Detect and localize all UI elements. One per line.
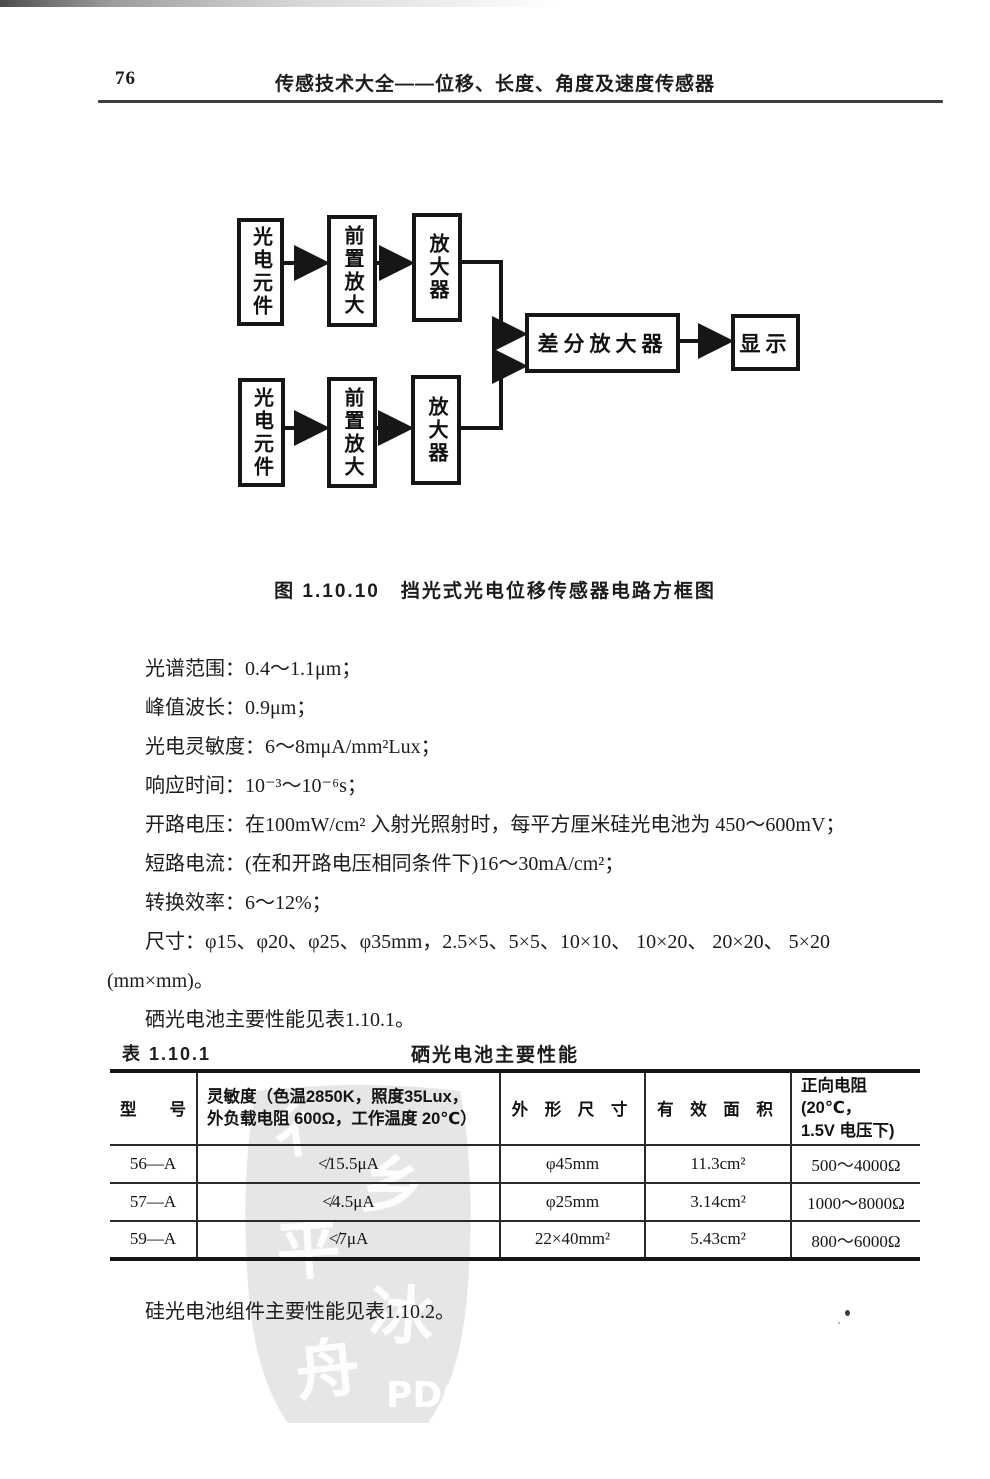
col-header-dimensions: 外 形 尺 寸 xyxy=(500,1071,645,1145)
col-header-forward-resistance: 正向电阻(20℃， 1.5V 电压下) xyxy=(791,1071,920,1145)
spec-line: 响应时间：10⁻³～10⁻⁶s； xyxy=(107,767,947,806)
spec-line: 峰值波长：0.9μm； xyxy=(107,689,947,728)
col-header-effective-area: 有 效 面 积 xyxy=(645,1071,791,1145)
cell-model: 57—A xyxy=(110,1183,197,1221)
watermark-label: PDG xyxy=(386,1375,472,1416)
cell-area: 3.14cm² xyxy=(645,1183,791,1221)
spec-line: 转换效率：6～12%； xyxy=(107,884,947,923)
cell-model: 59—A xyxy=(110,1221,197,1259)
spec-line: 开路电压：在100mW/cm² 入射光照射时，每平方厘米硅光电池为 450～60… xyxy=(107,806,947,845)
cell-area: 5.43cm² xyxy=(645,1221,791,1259)
spec-line-wrap: (mm×mm)。 xyxy=(107,962,947,1001)
cell-area: 11.3cm² xyxy=(645,1145,791,1183)
body-text-next-table-note: 硅光电池组件主要性能见表1.10.2。 xyxy=(145,1295,455,1324)
spec-line: 硒光电池主要性能见表1.10.1。 xyxy=(107,1001,947,1040)
table-row: 56—A ≮15.5μA φ45mm 11.3cm² 500～4000Ω xyxy=(110,1145,920,1183)
cell-sensitivity: ≮4.5μA xyxy=(197,1183,500,1221)
selenium-photocell-table: 型 号 灵敏度（色温2850K，照度35Lux， 外负载电阻 600Ω，工作温度… xyxy=(110,1069,920,1261)
cell-resistance: 500～4000Ω xyxy=(791,1145,920,1183)
spec-line: 光电灵敏度：6～8mμA/mm²Lux； xyxy=(107,728,947,767)
spec-line: 光谱范围：0.4～1.1μm； xyxy=(107,650,947,689)
figure-caption: 图 1.10.10 挡光式光电位移传感器电路方框图 xyxy=(0,576,990,603)
spec-line: 尺寸：φ15、φ20、φ25、φ35mm，2.5×5、5×5、10×10、 10… xyxy=(107,923,947,962)
cell-sensitivity: ≮15.5μA xyxy=(197,1145,500,1183)
diagram-connector-arrows xyxy=(0,0,990,560)
cell-resistance: 800～6000Ω xyxy=(791,1221,920,1259)
table-title: 硒光电池主要性能 xyxy=(0,1040,990,1067)
book-page: 彳 乡 平 冰 舟 PDG 76 传感技术大全——位移、长度、角度及速度传感器 … xyxy=(0,0,990,1479)
cell-model: 56—A xyxy=(110,1145,197,1183)
table-row: 59—A ≮7μA 22×40mm² 5.43cm² 800～6000Ω xyxy=(110,1221,920,1259)
cell-dimensions: φ25mm xyxy=(500,1183,645,1221)
cell-dimensions: 22×40mm² xyxy=(500,1221,645,1259)
svg-text:舟: 舟 xyxy=(292,1330,363,1411)
ink-speck xyxy=(838,1322,840,1324)
col-header-sensitivity: 灵敏度（色温2850K，照度35Lux， 外负载电阻 600Ω，工作温度 20℃… xyxy=(197,1071,500,1145)
col-header-model: 型 号 xyxy=(110,1071,197,1145)
cell-resistance: 1000～8000Ω xyxy=(791,1183,920,1221)
table-header-row: 型 号 灵敏度（色温2850K，照度35Lux， 外负载电阻 600Ω，工作温度… xyxy=(110,1071,920,1145)
table-row: 57—A ≮4.5μA φ25mm 3.14cm² 1000～8000Ω xyxy=(110,1183,920,1221)
ink-speck xyxy=(845,1310,850,1316)
spec-text-block: 光谱范围：0.4～1.1μm； 峰值波长：0.9μm； 光电灵敏度：6～8mμA… xyxy=(107,650,947,1040)
cell-sensitivity: ≮7μA xyxy=(197,1221,500,1259)
cell-dimensions: φ45mm xyxy=(500,1145,645,1183)
spec-line: 短路电流：(在和开路电压相同条件下)16～30mA/cm²； xyxy=(107,845,947,884)
